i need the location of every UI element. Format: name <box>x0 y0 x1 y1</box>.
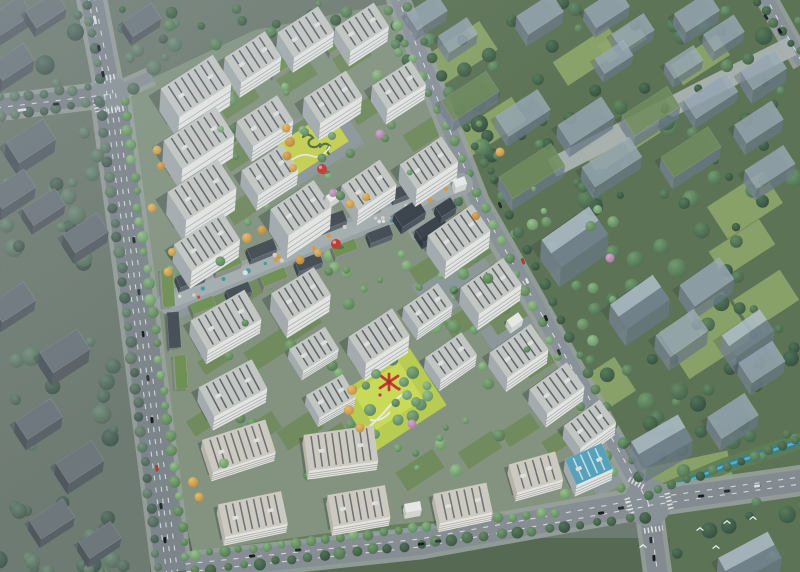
atmosphere-layer <box>0 0 800 572</box>
aerial-masterplan-rendering: Aerial architectural rendering of a resi… <box>0 0 800 572</box>
color-cast-overlay <box>0 0 800 572</box>
rendering-canvas <box>0 0 800 572</box>
